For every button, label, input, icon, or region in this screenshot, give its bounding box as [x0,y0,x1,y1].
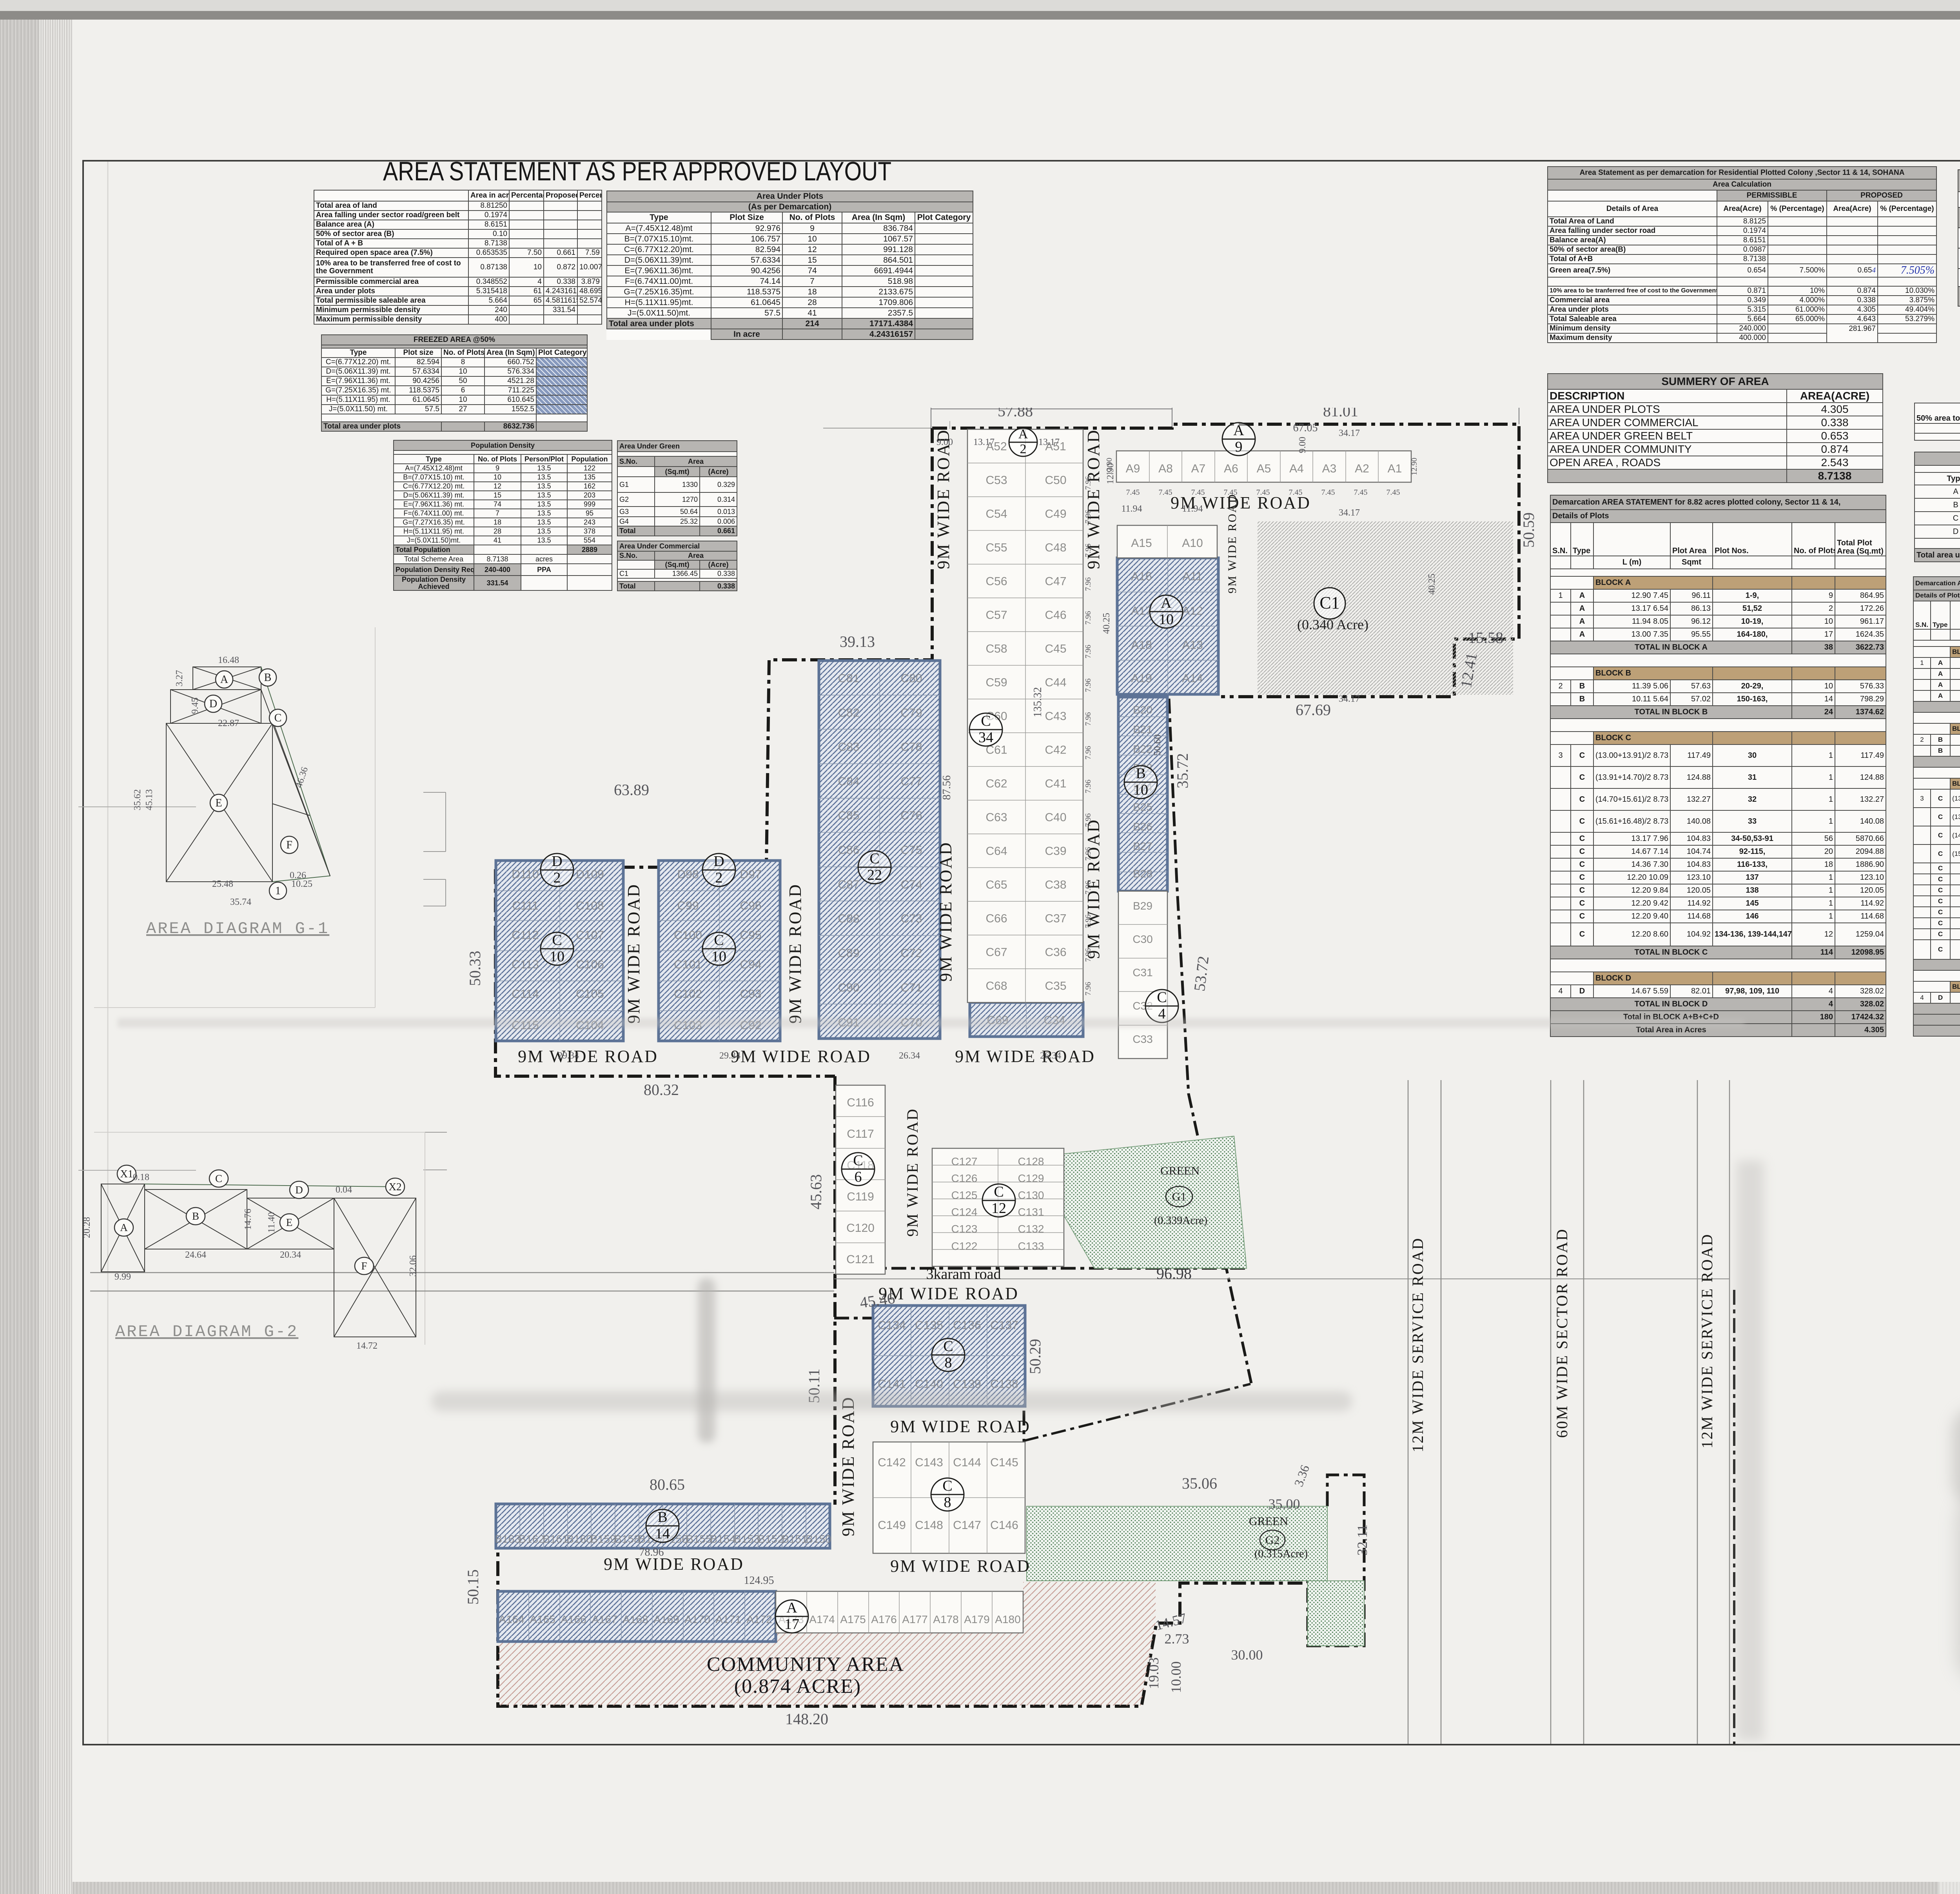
svg-text:X1: X1 [120,1168,133,1180]
svg-text:3.27: 3.27 [174,670,185,686]
svg-text:50.29: 50.29 [1026,1339,1044,1374]
svg-text:A13: A13 [1182,639,1203,652]
svg-text:C: C [942,1478,952,1494]
svg-text:34.17: 34.17 [1339,428,1360,438]
svg-text:C136: C136 [953,1319,981,1332]
svg-text:81.01: 81.01 [1323,408,1358,420]
svg-text:C50: C50 [1045,474,1066,487]
svg-text:A175: A175 [840,1613,866,1625]
svg-text:2: 2 [1020,442,1027,456]
svg-text:C37: C37 [1045,912,1066,925]
svg-text:C54: C54 [985,507,1007,520]
svg-text:A178: A178 [933,1613,958,1625]
svg-text:C44: C44 [1045,676,1066,689]
svg-text:17: 17 [784,1616,799,1633]
svg-text:B154: B154 [710,1533,735,1545]
svg-text:C53: C53 [985,474,1007,487]
svg-text:COMMUNITY AREA: COMMUNITY AREA [707,1653,904,1676]
svg-text:C96: C96 [740,899,761,912]
svg-text:8: 8 [944,1494,951,1511]
svg-text:B152: B152 [758,1533,783,1545]
svg-text:15.58: 15.58 [1468,629,1503,646]
svg-text:11.94: 11.94 [1121,504,1142,514]
svg-text:C85: C85 [838,809,859,822]
svg-text:C: C [853,1152,863,1169]
svg-text:C143: C143 [915,1456,943,1469]
svg-text:C135: C135 [915,1319,943,1332]
svg-text:C134: C134 [878,1319,906,1332]
svg-text:7.45: 7.45 [1387,488,1400,497]
svg-text:30.00: 30.00 [1231,1647,1263,1663]
svg-text:C124: C124 [951,1206,978,1218]
svg-text:3karam road: 3karam road [926,1266,1001,1282]
svg-text:C56: C56 [985,575,1007,588]
svg-text:B151: B151 [782,1533,807,1545]
svg-text:9M WIDE ROAD: 9M WIDE ROAD [890,1556,1031,1576]
svg-text:6: 6 [855,1169,862,1185]
svg-text:C87: C87 [838,878,859,891]
svg-text:B163: B163 [495,1533,520,1545]
svg-text:C144: C144 [953,1456,981,1469]
svg-text:7.45: 7.45 [1354,488,1368,497]
svg-text:AREA DIAGRAM G-2: AREA DIAGRAM G-2 [115,1322,298,1341]
svg-text:C42: C42 [1045,743,1066,756]
svg-text:B160: B160 [566,1533,592,1545]
svg-text:50.60: 50.60 [1152,734,1163,755]
svg-text:7.45: 7.45 [1321,488,1335,497]
svg-text:B162: B162 [519,1533,544,1545]
svg-text:D: D [295,1184,303,1196]
svg-text:C72: C72 [900,947,922,960]
svg-text:C79: C79 [900,706,922,719]
svg-text:C129: C129 [1018,1172,1044,1184]
svg-text:A: A [120,1222,128,1233]
svg-text:B20: B20 [1133,704,1152,716]
svg-text:C67: C67 [985,946,1007,959]
svg-text:14.76: 14.76 [243,1209,253,1230]
svg-text:7.96: 7.96 [1084,814,1093,827]
svg-text:7.96: 7.96 [1084,611,1093,625]
svg-text:C59: C59 [985,676,1007,689]
svg-text:9M WIDE ROAD: 9M WIDE ROAD [934,429,953,569]
svg-text:35.62: 35.62 [132,789,143,810]
svg-text:C58: C58 [985,642,1007,655]
svg-text:9.45: 9.45 [190,697,200,714]
svg-text:C148: C148 [915,1519,943,1532]
svg-text:B25: B25 [1133,801,1152,813]
svg-text:F: F [361,1260,367,1272]
svg-text:2: 2 [554,870,561,886]
svg-text:A168: A168 [622,1613,648,1625]
svg-text:C94: C94 [740,958,761,971]
svg-text:7.96: 7.96 [1084,915,1093,928]
svg-text:C122: C122 [951,1240,978,1252]
svg-text:9M WIDE ROAD: 9M WIDE ROAD [604,1554,744,1574]
svg-text:E: E [215,797,222,809]
svg-text:C41: C41 [1045,777,1066,790]
svg-text:C145: C145 [990,1456,1018,1469]
svg-text:0.18: 0.18 [133,1172,149,1182]
svg-text:GREEN: GREEN [1249,1515,1288,1528]
svg-text:C55: C55 [985,541,1007,554]
svg-text:C125: C125 [951,1189,978,1201]
svg-text:53.72: 53.72 [1191,955,1212,992]
svg-text:C86: C86 [838,844,859,857]
svg-text:A5: A5 [1257,462,1271,475]
svg-text:C113: C113 [512,958,539,971]
svg-text:A171: A171 [715,1613,741,1625]
svg-text:C133: C133 [1018,1240,1044,1252]
svg-text:C101: C101 [674,958,702,971]
svg-text:7.96: 7.96 [1084,780,1093,794]
svg-text:G1: G1 [1172,1190,1187,1203]
svg-text:C62: C62 [985,777,1007,790]
svg-text:22.87: 22.87 [218,718,239,728]
svg-text:9M WIDE ROAD: 9M WIDE ROAD [955,1047,1095,1066]
svg-text:C: C [274,712,282,724]
svg-text:C57: C57 [985,608,1007,621]
svg-text:7.96: 7.96 [1084,645,1093,659]
svg-text:135.32: 135.32 [1032,687,1044,717]
svg-text:A19: A19 [1131,672,1152,685]
svg-text:C107: C107 [576,929,604,942]
svg-text:C116: C116 [847,1096,874,1109]
svg-text:12.90: 12.90 [1105,458,1114,476]
svg-text:7.96: 7.96 [1084,746,1093,760]
svg-text:A165: A165 [530,1613,555,1625]
svg-text:C: C [869,850,879,867]
svg-text:A4: A4 [1289,462,1304,475]
svg-text:9M WIDE ROAD: 9M WIDE ROAD [878,1284,1019,1303]
svg-text:C: C [1157,989,1167,1006]
svg-text:C47: C47 [1045,575,1066,588]
svg-text:B26: B26 [1133,821,1152,833]
svg-text:C95: C95 [740,929,761,942]
svg-text:29.34: 29.34 [719,1051,740,1061]
svg-text:C66: C66 [985,912,1007,925]
svg-text:C75: C75 [900,844,922,857]
svg-text:C99: C99 [677,899,699,912]
svg-text:C131: C131 [1018,1206,1044,1218]
svg-text:A176: A176 [871,1613,897,1625]
svg-text:0.26: 0.26 [290,870,306,881]
svg-text:C149: C149 [878,1519,906,1532]
svg-text:8: 8 [945,1355,952,1371]
svg-text:B: B [264,672,272,684]
svg-text:2.73: 2.73 [1165,1631,1189,1647]
svg-text:34.17: 34.17 [1339,508,1360,518]
svg-text:50.59: 50.59 [1520,512,1537,548]
svg-text:C130: C130 [1018,1189,1044,1201]
svg-text:7.45: 7.45 [1159,488,1172,497]
svg-text:D98: D98 [677,868,699,881]
svg-text:10.00: 10.00 [1168,1662,1184,1693]
svg-text:(0.874 ACRE): (0.874 ACRE) [734,1675,861,1698]
svg-text:7.45: 7.45 [1191,488,1205,497]
svg-text:63.89: 63.89 [614,781,649,799]
svg-text:C142: C142 [878,1456,906,1469]
svg-text:9M WIDE ROAD: 9M WIDE ROAD [624,883,643,1024]
svg-text:C48: C48 [1045,541,1066,554]
svg-text:34: 34 [978,729,993,746]
svg-text:C90: C90 [838,981,859,994]
svg-text:A16: A16 [1131,570,1152,583]
svg-text:A: A [786,1600,797,1616]
svg-text:D: D [209,698,217,710]
svg-text:B21: B21 [1133,723,1152,735]
svg-text:148.20: 148.20 [785,1710,828,1728]
svg-text:10: 10 [1159,611,1174,628]
svg-text:A166: A166 [561,1613,586,1625]
svg-text:9M WIDE ROAD: 9M WIDE ROAD [890,1417,1031,1436]
svg-text:C126: C126 [951,1172,978,1184]
svg-text:C63: C63 [985,811,1007,824]
svg-text:A: A [1018,427,1028,441]
svg-text:35.06: 35.06 [1182,1475,1217,1492]
svg-text:D: D [713,853,724,870]
svg-text:C: C [215,1173,222,1184]
svg-text:0.04: 0.04 [336,1185,352,1195]
svg-text:7.96: 7.96 [1084,881,1093,895]
svg-text:C117: C117 [847,1128,874,1140]
svg-text:C82: C82 [838,706,859,719]
svg-text:C80: C80 [900,672,922,685]
svg-text:C68: C68 [985,979,1007,992]
svg-text:14: 14 [655,1525,670,1542]
svg-text:X2: X2 [389,1181,402,1193]
svg-text:20.34: 20.34 [280,1250,301,1260]
svg-text:57.88: 57.88 [998,408,1033,420]
svg-text:C74: C74 [900,878,922,891]
svg-text:C119: C119 [847,1190,874,1203]
svg-text:(0.315Acre): (0.315Acre) [1254,1548,1308,1560]
svg-text:7.96: 7.96 [1084,679,1093,692]
svg-text:B28: B28 [1133,868,1152,880]
svg-text:A164: A164 [499,1613,524,1625]
svg-text:9: 9 [1235,439,1243,455]
svg-text:13.17: 13.17 [1038,437,1060,447]
svg-text:7.96: 7.96 [1084,510,1093,524]
svg-text:C65: C65 [985,878,1007,891]
svg-text:45.63: 45.63 [807,1174,825,1209]
svg-text:12: 12 [991,1200,1006,1217]
svg-text:C64: C64 [985,844,1007,857]
svg-text:40.25: 40.25 [1102,613,1112,634]
svg-text:C147: C147 [953,1519,981,1532]
svg-text:C127: C127 [951,1155,978,1168]
svg-text:29.34: 29.34 [558,1051,579,1061]
svg-text:D109: D109 [576,868,604,881]
svg-text:C35: C35 [1045,979,1066,992]
svg-text:9M WIDE ROAD: 9M WIDE ROAD [1226,493,1239,593]
svg-text:C: C [943,1338,953,1355]
svg-text:B27: B27 [1133,840,1152,852]
svg-text:39.13: 39.13 [840,633,875,650]
svg-text:C78: C78 [900,741,922,754]
svg-text:80.32: 80.32 [644,1081,679,1099]
svg-text:A: A [1233,422,1244,439]
svg-text:12.90: 12.90 [1410,458,1419,476]
svg-text:C81: C81 [838,672,859,685]
svg-text:80.65: 80.65 [650,1476,685,1493]
svg-text:D110: D110 [512,868,539,881]
svg-text:9M WIDE ROAD: 9M WIDE ROAD [838,1396,858,1536]
svg-text:C: C [714,932,724,948]
svg-text:A180: A180 [995,1613,1020,1625]
svg-text:A2: A2 [1355,462,1369,475]
svg-text:10: 10 [711,948,726,965]
svg-text:A177: A177 [902,1613,927,1625]
svg-text:(0.340 Acre): (0.340 Acre) [1297,617,1368,632]
svg-text:C105: C105 [576,988,604,1001]
svg-text:C38: C38 [1045,878,1066,891]
svg-text:7.96: 7.96 [1084,847,1093,861]
svg-text:B29: B29 [1133,900,1152,912]
svg-text:B155: B155 [686,1533,711,1545]
svg-text:7.45: 7.45 [1289,488,1303,497]
svg-text:B158: B158 [614,1533,640,1545]
svg-text:B: B [1136,765,1145,782]
svg-text:C132: C132 [1018,1223,1044,1235]
svg-text:C123: C123 [951,1223,978,1235]
svg-text:35.00: 35.00 [1269,1496,1300,1512]
svg-text:22: 22 [867,867,882,883]
svg-text:C121: C121 [846,1253,875,1266]
svg-text:60M WIDE SECTOR ROAD: 60M WIDE SECTOR ROAD [1553,1228,1571,1438]
svg-text:C112: C112 [512,929,539,942]
svg-text:A167: A167 [592,1613,617,1625]
svg-text:A18: A18 [1131,639,1152,652]
svg-text:F: F [286,839,292,851]
svg-text:C88: C88 [838,912,859,925]
svg-text:B161: B161 [543,1533,568,1545]
svg-text:C33: C33 [1132,1033,1152,1045]
svg-text:19.03: 19.03 [1146,1658,1161,1689]
svg-text:B: B [192,1210,199,1222]
svg-text:67.05: 67.05 [1293,422,1318,434]
svg-text:78.96: 78.96 [639,1546,664,1558]
svg-text:C89: C89 [838,947,859,960]
svg-text:9M WIDE ROAD: 9M WIDE ROAD [518,1047,658,1066]
svg-text:34.17: 34.17 [1339,694,1360,704]
svg-text:11.94: 11.94 [1182,504,1203,514]
svg-text:A179: A179 [964,1613,989,1625]
svg-text:G2: G2 [1265,1534,1280,1547]
svg-text:A170: A170 [684,1613,710,1625]
svg-text:24.64: 24.64 [185,1250,206,1260]
svg-text:A14: A14 [1182,672,1203,685]
svg-text:96.98: 96.98 [1156,1265,1192,1282]
svg-text:25.48: 25.48 [212,879,233,889]
svg-text:1: 1 [275,885,281,897]
svg-text:C83: C83 [838,741,859,754]
svg-text:C: C [994,1184,1004,1200]
svg-text:10: 10 [1133,782,1148,798]
svg-text:9M WIDE ROAD: 9M WIDE ROAD [731,1047,871,1066]
svg-text:A17: A17 [1131,605,1152,617]
svg-text:9M WIDE ROAD: 9M WIDE ROAD [786,883,805,1024]
svg-text:A: A [1161,595,1172,611]
svg-text:C39: C39 [1045,844,1066,857]
svg-text:B: B [657,1509,667,1525]
svg-text:C43: C43 [1045,710,1066,723]
svg-text:C: C [981,713,991,729]
svg-text:C137: C137 [990,1319,1018,1332]
svg-text:26.34: 26.34 [899,1051,920,1061]
svg-text:A: A [220,674,229,686]
svg-text:C40: C40 [1045,811,1066,824]
svg-text:C: C [552,932,562,948]
svg-text:C30: C30 [1132,933,1152,945]
svg-text:C46: C46 [1045,608,1066,621]
svg-text:A7: A7 [1191,462,1206,475]
svg-text:50.33: 50.33 [466,951,484,986]
svg-text:87.56: 87.56 [941,775,953,800]
svg-text:D: D [552,853,562,870]
svg-text:9.00: 9.00 [1298,437,1308,453]
svg-text:32.11: 32.11 [1354,1524,1370,1556]
svg-text:(0.339Acre): (0.339Acre) [1154,1215,1207,1227]
svg-text:C111: C111 [512,899,538,912]
svg-text:7.45: 7.45 [1224,488,1238,497]
svg-text:B153: B153 [734,1533,759,1545]
svg-text:A9: A9 [1126,462,1140,475]
svg-text:C139: C139 [953,1378,981,1391]
svg-text:12M WIDE SERVICE ROAD: 12M WIDE SERVICE ROAD [1409,1237,1426,1452]
svg-text:C108: C108 [576,899,604,912]
svg-text:C73: C73 [900,912,922,925]
svg-text:3.36: 3.36 [1291,1463,1312,1489]
svg-text:B159: B159 [590,1533,616,1545]
svg-text:2: 2 [715,870,723,886]
svg-text:20.28: 20.28 [82,1217,92,1238]
svg-text:14.72: 14.72 [356,1341,377,1351]
svg-text:A10: A10 [1182,537,1203,550]
svg-text:C114: C114 [512,988,539,1001]
svg-text:7.96: 7.96 [1084,982,1093,996]
svg-text:9M WIDE ROAD: 9M WIDE ROAD [904,1108,921,1237]
svg-text:50.15: 50.15 [464,1569,482,1605]
svg-text:C77: C77 [900,775,922,788]
svg-text:A8: A8 [1158,462,1173,475]
svg-text:7.96: 7.96 [1084,948,1093,962]
svg-text:40.25: 40.25 [1427,574,1437,595]
svg-text:A3: A3 [1322,462,1337,475]
svg-text:A1: A1 [1388,462,1402,475]
svg-text:14.57: 14.57 [1154,1610,1189,1634]
svg-text:C138: C138 [990,1378,1018,1391]
svg-text:C106: C106 [576,958,604,971]
svg-text:C140: C140 [915,1378,943,1391]
svg-text:C76: C76 [900,809,922,822]
svg-text:45.13: 45.13 [144,789,154,810]
svg-text:A6: A6 [1224,462,1238,475]
svg-text:A15: A15 [1131,537,1152,550]
svg-text:7.45: 7.45 [1126,488,1140,497]
svg-text:7.96: 7.96 [1084,577,1093,591]
svg-text:7.96: 7.96 [1084,712,1093,726]
svg-text:C146: C146 [990,1519,1018,1532]
svg-text:10: 10 [550,948,564,965]
svg-text:E: E [286,1217,293,1228]
svg-text:7.45: 7.45 [1256,488,1270,497]
svg-text:11.40: 11.40 [267,1212,277,1233]
svg-text:A172: A172 [746,1613,772,1625]
svg-text:C71: C71 [900,981,922,994]
svg-text:C45: C45 [1045,642,1066,655]
svg-text:C31: C31 [1132,966,1152,979]
svg-text:35.72: 35.72 [1174,753,1191,788]
